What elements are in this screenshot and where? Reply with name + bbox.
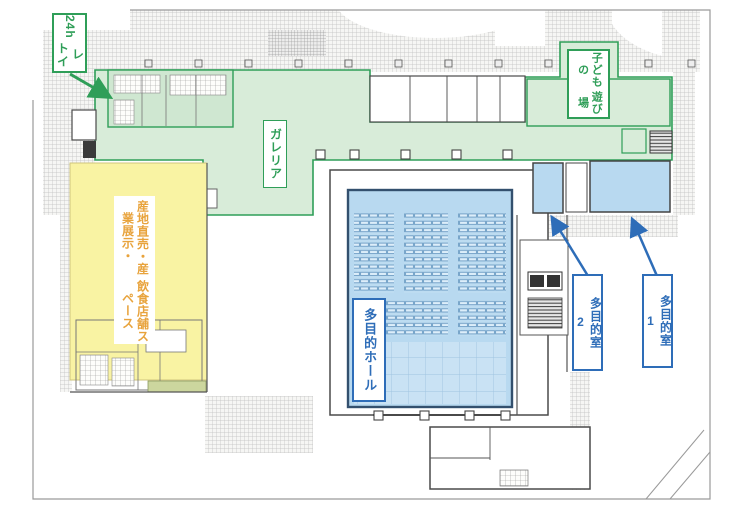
label-market-line1: 産地直売・産業展示・ (120, 196, 150, 278)
label-multipurpose-room1: 多目的室1 (642, 274, 673, 368)
label-room1-text: 多目的室1 (643, 295, 673, 347)
floor-plan-drawing (0, 0, 746, 508)
south-rooms (373, 411, 590, 489)
label-market-line2: 飲食店舗スペース (120, 278, 150, 344)
entrance-porch (268, 30, 326, 56)
label-play-area-line2: 遊び場 (575, 89, 603, 117)
label-play-area-line1: 子どもの (575, 51, 603, 89)
stairs-block (650, 131, 672, 153)
label-multipurpose-hall: 多目的ホール (352, 298, 386, 402)
terrace-hatch-bottom (205, 396, 313, 453)
label-24h-toilet-line1: 24h (62, 15, 77, 39)
label-room1-number: 1 (643, 295, 658, 347)
floor-plan-page: 24h トイレ 子どもの 遊び場 ガレリア 産地直売・産業展示・ 飲食店舗スペー… (0, 0, 746, 508)
label-hall-text: 多目的ホール (361, 308, 377, 392)
terrace-hatch-east (673, 57, 695, 215)
label-market-space: 産地直売・産業展示・ 飲食店舗スペース (114, 196, 155, 344)
toilet-block (108, 70, 233, 127)
label-galleria: ガレリア (263, 120, 287, 188)
west-small-room (72, 110, 96, 140)
west-dark-block (83, 141, 96, 158)
label-room2-number: 2 (573, 297, 588, 349)
paving-under-rooms (530, 215, 678, 237)
label-room2-text: 多目的室2 (573, 297, 603, 349)
label-multipurpose-room2: 多目的室2 (572, 274, 603, 371)
room-between (566, 163, 587, 212)
label-24h-toilet-line2: トイレ (55, 39, 85, 71)
label-24h-toilet: 24h トイレ (52, 13, 87, 73)
north-rooms (370, 76, 525, 122)
road-diagonals (646, 430, 710, 499)
terrace-rect-cutout (495, 10, 545, 46)
label-galleria-text: ガレリア (268, 128, 283, 180)
room2-zone (533, 163, 563, 213)
label-play-area: 子どもの 遊び場 (567, 49, 610, 119)
room1-zone (590, 161, 670, 212)
